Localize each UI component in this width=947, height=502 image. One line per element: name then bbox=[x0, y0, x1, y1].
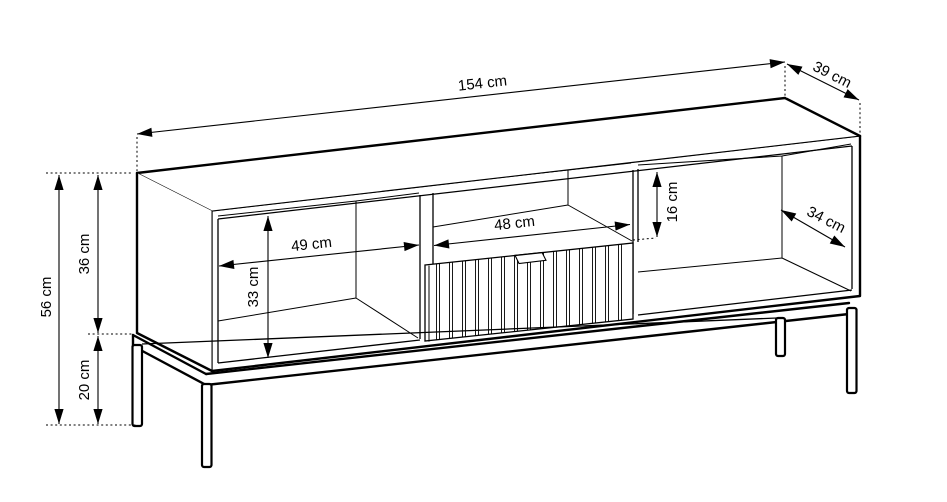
leg-front-left bbox=[202, 384, 212, 467]
dimension-depth-39: 39 cm bbox=[787, 58, 859, 100]
dimension-body-36: 36 cm bbox=[76, 175, 98, 333]
leg-back-left bbox=[133, 345, 143, 426]
dim-label-height-legs: 20 cm bbox=[76, 360, 93, 401]
dim-label-width: 154 cm bbox=[457, 72, 508, 94]
dim-label-niche-height: 16 cm bbox=[664, 182, 681, 223]
dimension-legs-20: 20 cm bbox=[76, 336, 98, 424]
furniture-dimension-diagram: 154 cm 39 cm 56 cm 36 cm 20 cm 49 cm 33 … bbox=[0, 0, 947, 502]
leg-back-right bbox=[776, 318, 785, 356]
leg-front-right bbox=[847, 308, 857, 393]
tv-stand-drawing: 154 cm 39 cm 56 cm 36 cm 20 cm 49 cm 33 … bbox=[0, 0, 947, 502]
dim-label-height-body: 36 cm bbox=[76, 234, 93, 275]
dim-label-left-height: 33 cm bbox=[245, 267, 262, 308]
dim-label-height-total: 56 cm bbox=[38, 277, 55, 318]
dimension-height-56: 56 cm bbox=[38, 175, 59, 424]
